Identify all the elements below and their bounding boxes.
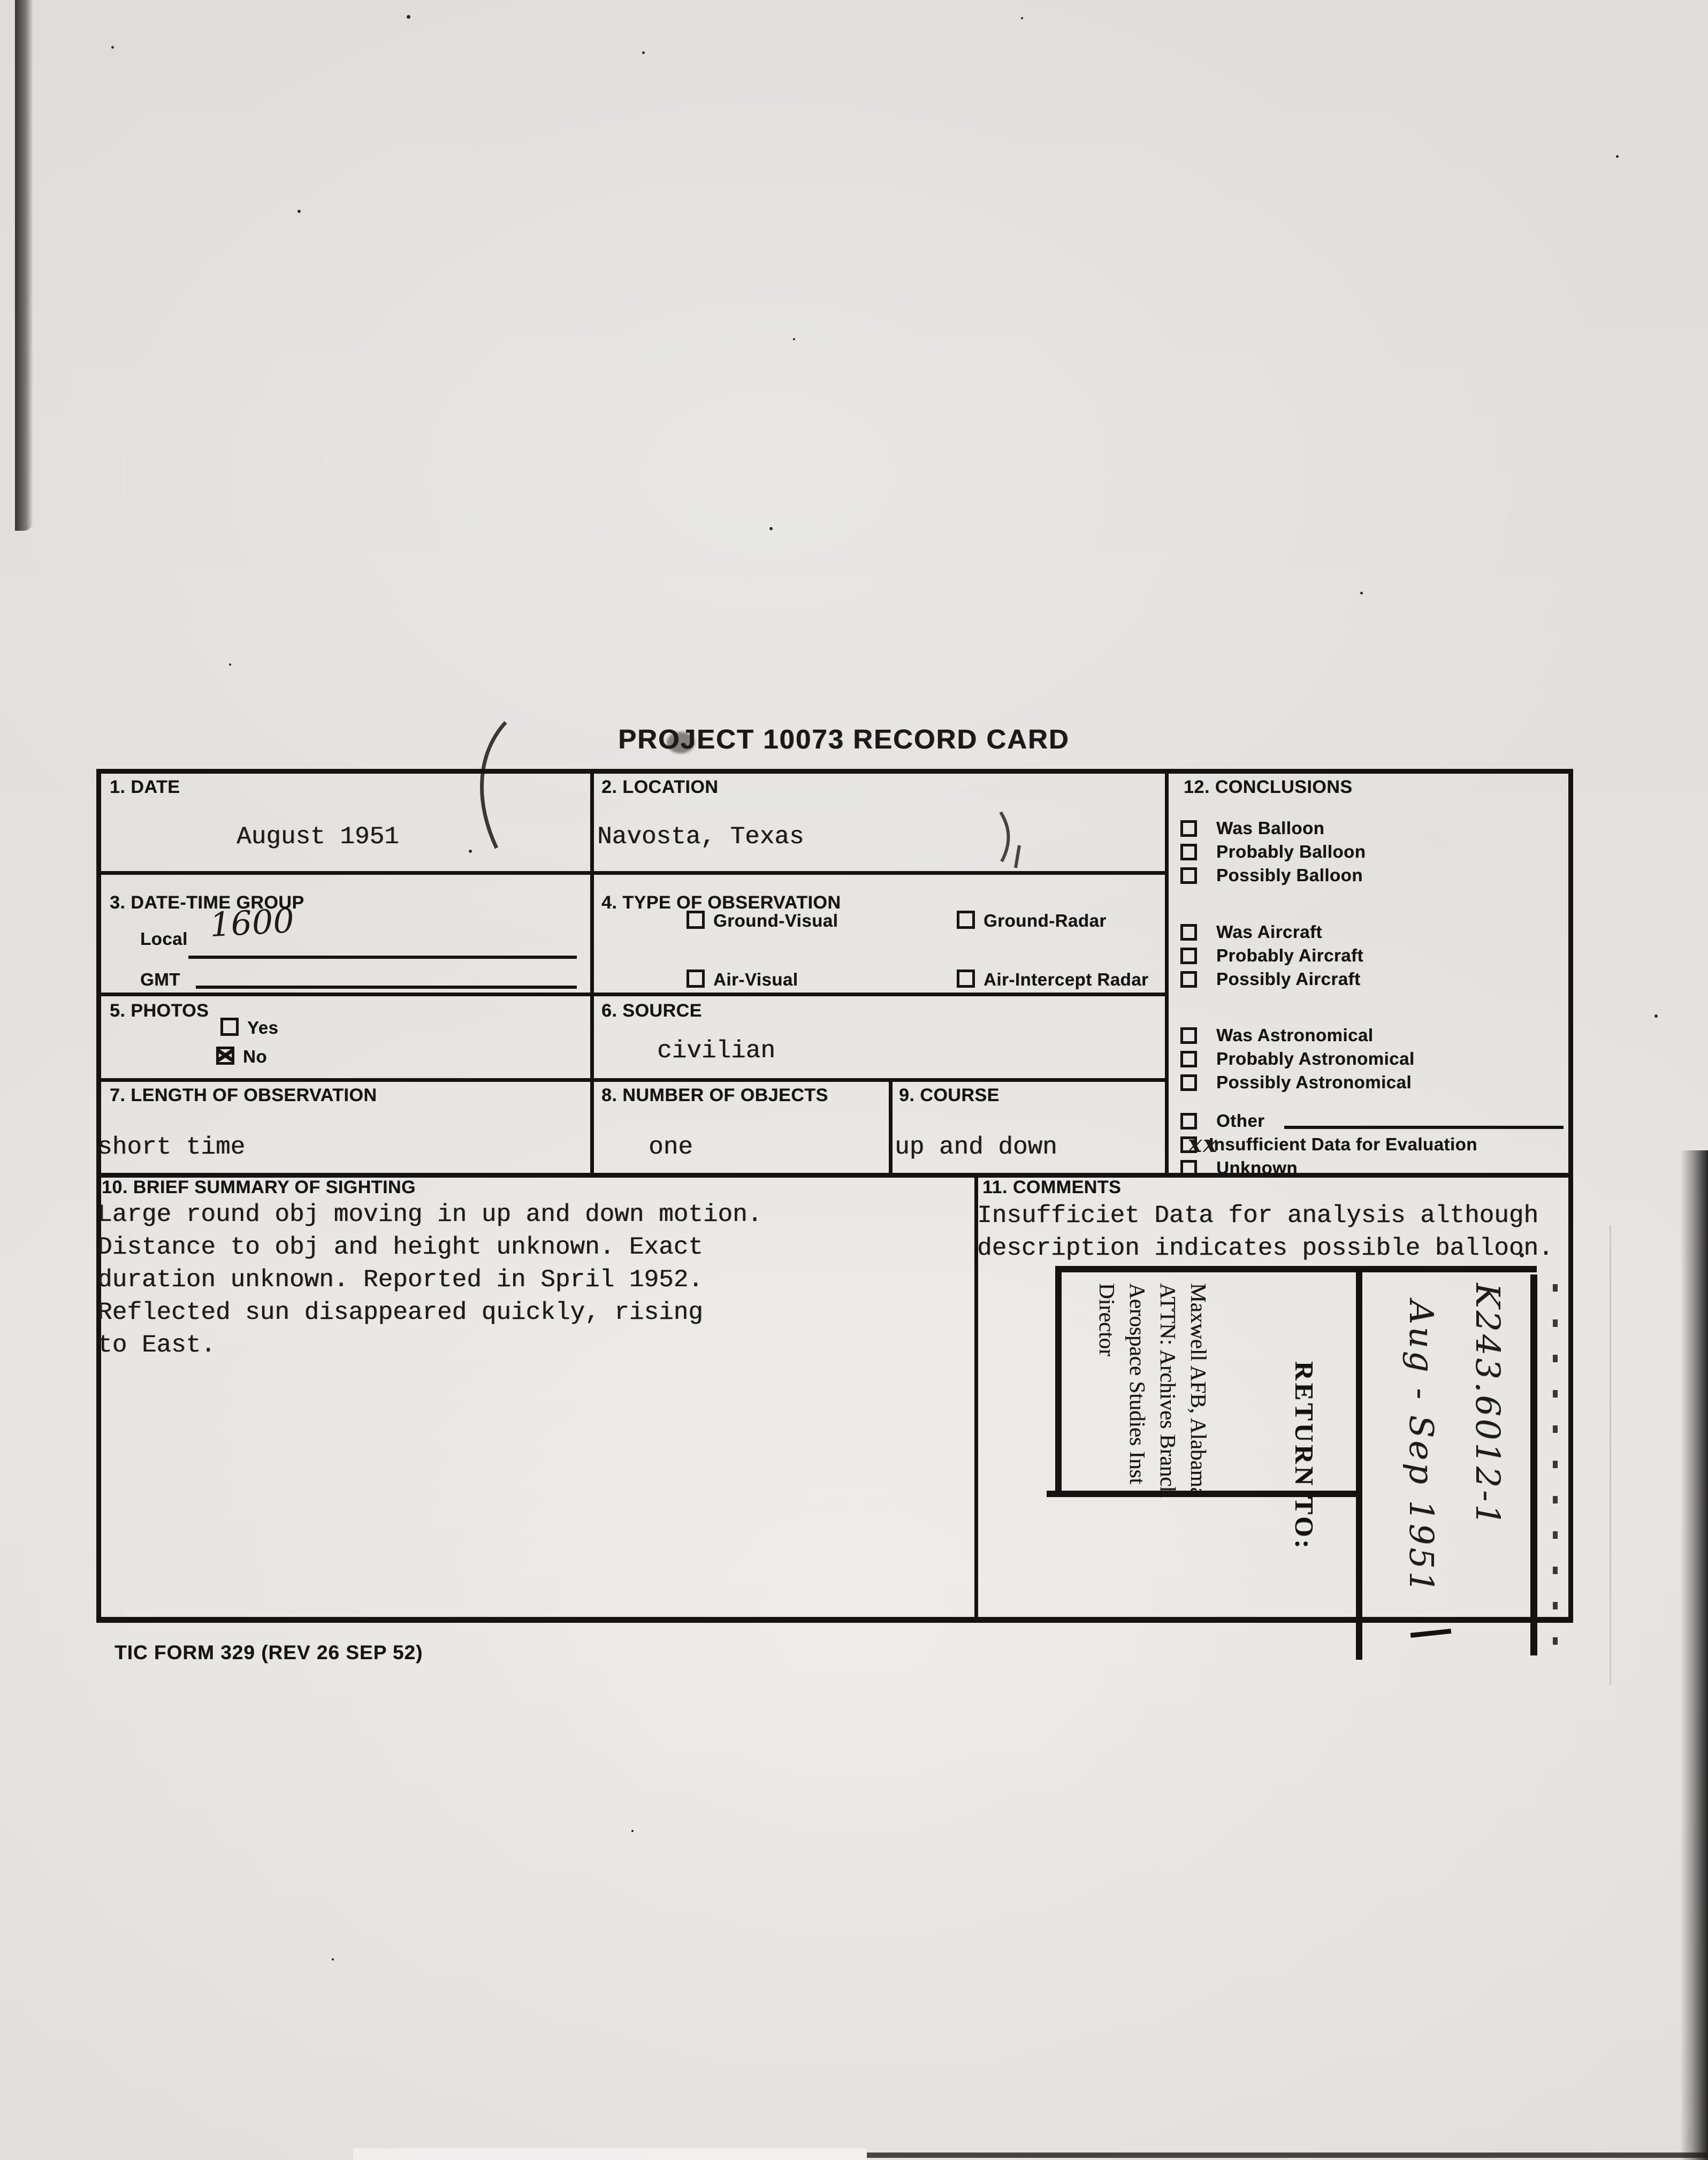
handwritten-xx-mark: xx [1188, 1131, 1218, 1158]
checkbox-icon [687, 911, 705, 929]
conclusion-label: Unknown [1216, 1158, 1298, 1178]
checkbox-icon [1180, 820, 1197, 837]
scan-speck [631, 1830, 634, 1832]
conclusion-possibly-balloon: Possibly Balloon [1180, 864, 1568, 887]
option-label: Yes [247, 1018, 278, 1038]
scan-edge-bottom-light [353, 2148, 867, 2160]
row-divider-3 [96, 1078, 1168, 1082]
handwritten-line: K243.6012-1 [1462, 1269, 1531, 1622]
conclusion-label: Was Aircraft [1216, 922, 1322, 942]
handwritten-archive-reference: K243.6012-1Aug - Sep 1951 [1357, 1269, 1531, 1622]
row-divider-1 [96, 871, 1168, 875]
scan-speck [469, 850, 472, 853]
conclusion-label: Probably Astronomical [1216, 1049, 1415, 1069]
brief-summary-label: 10. BRIEF SUMMARY OF SIGHTING [102, 1177, 416, 1198]
checkbox-icon [1180, 1160, 1197, 1177]
option-label: Air-Visual [713, 970, 798, 990]
return-to-label: RETURN TO: [1282, 1269, 1354, 1492]
checkbox-icon [1180, 948, 1197, 964]
checkbox-icon [1180, 1051, 1197, 1067]
date-value: August 1951 [237, 823, 399, 851]
scan-speck [229, 663, 231, 666]
stamp-dashed-edge [1553, 1284, 1558, 1654]
length-of-observation-label: 7. LENGTH OF OBSERVATION [110, 1085, 377, 1106]
conclusion-label: Possibly Aircraft [1216, 969, 1361, 989]
scan-artifact-line [1610, 1225, 1611, 1685]
option-label: Air-Intercept Radar [983, 970, 1148, 990]
local-underline [188, 956, 577, 959]
conclusion-unknown: Unknown [1180, 1156, 1568, 1180]
course-value: up and down [895, 1133, 1057, 1161]
col-divider-conclusions [1165, 769, 1169, 1177]
scan-speck [793, 338, 795, 340]
card-border-top [96, 769, 1573, 774]
scan-edge-bottom-dark [867, 2153, 1708, 2158]
scan-speck [332, 1958, 334, 1960]
scanned-record-card-page: PROJECT 10073 RECORD CARD 1. DATE August… [0, 0, 1708, 2160]
conclusions-label: 12. CONCLUSIONS [1184, 777, 1352, 798]
card-border-right [1568, 769, 1573, 1623]
option-label: No [243, 1047, 267, 1067]
handwriting-flourish [1410, 1629, 1452, 1638]
course-label: 9. COURSE [899, 1085, 1000, 1106]
conclusion-insufficient-data-for-evaluation: xxInsufficient Data for Evaluation [1180, 1133, 1568, 1156]
other-fill-line [1284, 1113, 1564, 1129]
conclusion-probably-astronomical: Probably Astronomical [1180, 1047, 1568, 1071]
scan-speck [1616, 155, 1619, 158]
comments-label: 11. COMMENTS [982, 1177, 1121, 1198]
card-border-bottom [96, 1617, 1573, 1623]
checkbox-icon [1180, 1113, 1197, 1129]
checkbox-icon [1180, 971, 1197, 988]
title-smudge [667, 732, 695, 753]
conclusion-label: Other [1216, 1111, 1265, 1131]
photos-label: 5. PHOTOS [110, 1001, 209, 1021]
stamp-rotated-text-block: RETURN TO: Maxwell AFB, AlabamaATTN: Arc… [1058, 1269, 1354, 1492]
conclusion-possibly-astronomical: Possibly Astronomical [1180, 1071, 1568, 1094]
comments-text: Insufficiet Data for analysis although d… [977, 1200, 1553, 1265]
checkbox-icon [1180, 867, 1197, 884]
number-of-objects-value: one [649, 1133, 693, 1161]
conclusion-label: Was Astronomical [1216, 1025, 1373, 1045]
card-border-left [96, 769, 101, 1623]
option-yes: Yes [220, 1018, 278, 1038]
conclusion-label: Possibly Astronomical [1216, 1072, 1412, 1093]
checkbox-icon [957, 970, 975, 988]
checkbox-icon [1180, 924, 1197, 941]
local-label: Local [140, 929, 188, 949]
option-ground-radar: Ground-Radar [957, 911, 1107, 931]
date-label: 1. DATE [110, 777, 180, 798]
return-address-line: ATTN: Archives Branch [1153, 1269, 1183, 1492]
location-label: 2. LOCATION [601, 777, 718, 798]
option-no: No [216, 1047, 267, 1067]
conclusion-was-aircraft: Was Aircraft [1180, 920, 1568, 944]
source-label: 6. SOURCE [601, 1001, 702, 1021]
number-of-objects-label: 8. NUMBER OF OBJECTS [601, 1085, 828, 1106]
option-air-visual: Air-Visual [687, 970, 798, 990]
conclusion-label: Probably Aircraft [1216, 945, 1363, 966]
conclusion-label: Possibly Balloon [1216, 865, 1363, 886]
option-air-intercept-radar: Air-Intercept Radar [957, 970, 1148, 990]
checkbox-icon [957, 911, 975, 929]
source-value: civilian [657, 1037, 775, 1065]
checkbox-icon [220, 1018, 239, 1036]
scan-speck [1360, 592, 1363, 594]
conclusion-was-astronomical: Was Astronomical [1180, 1024, 1568, 1047]
length-of-observation-value: short time [97, 1133, 245, 1161]
pen-arc-mark [455, 717, 530, 856]
scan-speck [111, 46, 114, 49]
option-ground-visual: Ground-Visual [687, 911, 838, 931]
scan-speck [769, 527, 773, 530]
return-address-line: Aerospace Studies Inst [1122, 1269, 1153, 1492]
scan-speck [407, 15, 410, 19]
scan-speck [1021, 17, 1023, 19]
pen-tick-mark [990, 808, 1038, 872]
conclusions-checklist: Was BalloonProbably BalloonPossibly Ball… [1180, 816, 1568, 1180]
checkbox-icon [1180, 1027, 1197, 1044]
row-divider-2 [96, 993, 1168, 996]
gmt-label: GMT [140, 970, 180, 990]
return-address-line: Maxwell AFB, Alabama [1183, 1269, 1214, 1492]
conclusion-label: Insufficient Data for Evaluation [1209, 1134, 1477, 1155]
return-address: Maxwell AFB, AlabamaATTN: Archives Branc… [1092, 1269, 1214, 1492]
scan-speck [642, 51, 645, 54]
scan-edge-shadow-left [15, 0, 33, 531]
conclusion-other: Other [1180, 1109, 1568, 1133]
scan-speck [1654, 1014, 1658, 1018]
scan-speck [298, 210, 301, 213]
checkbox-icon [687, 970, 705, 988]
conclusion-probably-balloon: Probably Balloon [1180, 840, 1568, 864]
handwritten-line: Aug - Sep 1951 [1396, 1269, 1447, 1622]
checkbox-icon [216, 1047, 234, 1065]
col-divider-1 [590, 769, 594, 1177]
conclusion-was-balloon: Was Balloon [1180, 816, 1568, 840]
location-value: Navosta, Texas [597, 823, 804, 851]
conclusion-probably-aircraft: Probably Aircraft [1180, 944, 1568, 967]
gmt-underline [196, 986, 577, 989]
col-divider-objects-course [889, 1078, 893, 1177]
conclusion-possibly-aircraft: Possibly Aircraft [1180, 967, 1568, 991]
form-number: TIC FORM 329 (REV 26 SEP 52) [115, 1642, 423, 1664]
brief-summary-text: Large round obj moving in up and down mo… [97, 1199, 762, 1362]
checkbox-icon [1180, 844, 1197, 860]
checkbox-icon [1180, 1074, 1197, 1091]
option-label: Ground-Visual [713, 911, 838, 931]
scan-edge-shadow-right [1680, 1150, 1708, 2160]
local-value-handwritten: 1600 [209, 901, 295, 944]
conclusion-label: Was Balloon [1216, 818, 1324, 838]
conclusion-label: Probably Balloon [1216, 842, 1366, 862]
option-label: Ground-Radar [983, 911, 1107, 931]
return-address-line: Director [1092, 1269, 1122, 1492]
